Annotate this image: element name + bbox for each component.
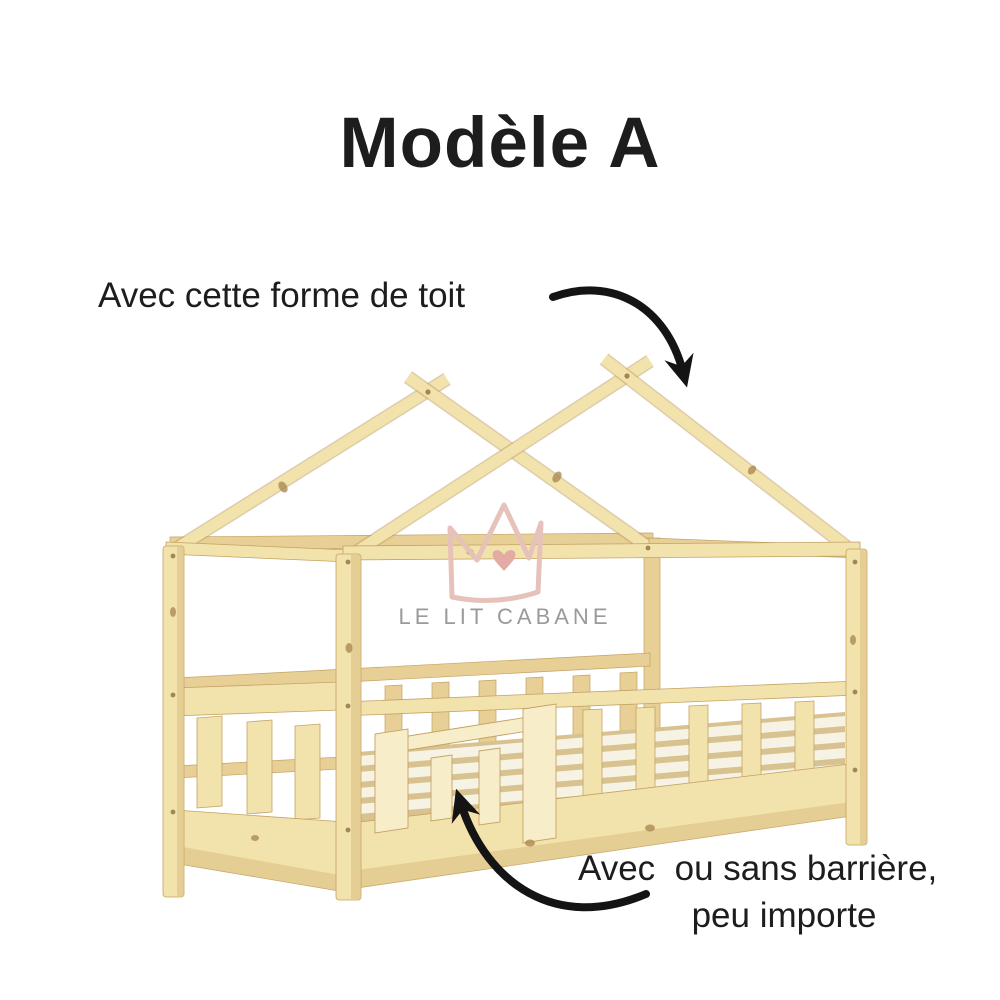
barrier-callout-line1: Avec ou sans barrière,: [578, 849, 990, 889]
barrier-callout: Avec ou sans barrière, peu importe: [578, 849, 990, 936]
brand-watermark: LE LIT CABANE: [355, 604, 655, 630]
barrier-callout-line2: peu importe: [578, 896, 990, 936]
roof-callout-label: Avec cette forme de toit: [98, 276, 465, 316]
curved-arrow-to-roof-icon: [553, 290, 683, 372]
page-title: Modèle A: [0, 103, 1000, 184]
annotated-product-image: Modèle A Avec cette forme de toit LE LIT…: [0, 0, 1000, 1000]
head-barrier: [173, 682, 345, 892]
